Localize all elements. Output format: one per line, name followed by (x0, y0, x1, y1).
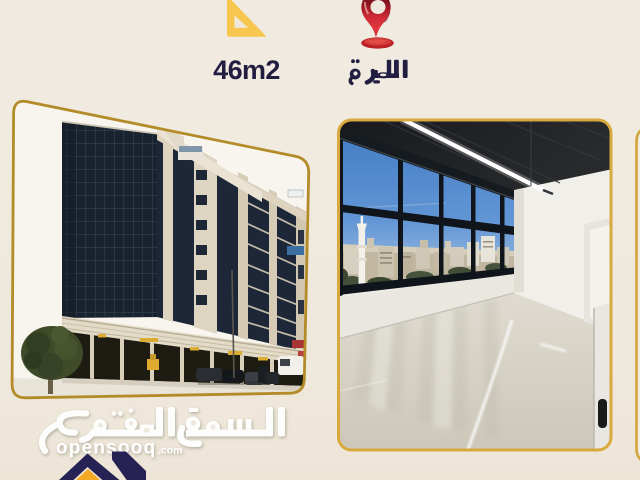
svg-text:.com: .com (158, 445, 183, 457)
svg-text:opensooq: opensooq (56, 438, 156, 459)
svg-text:46m2: 46m2 (213, 55, 280, 85)
